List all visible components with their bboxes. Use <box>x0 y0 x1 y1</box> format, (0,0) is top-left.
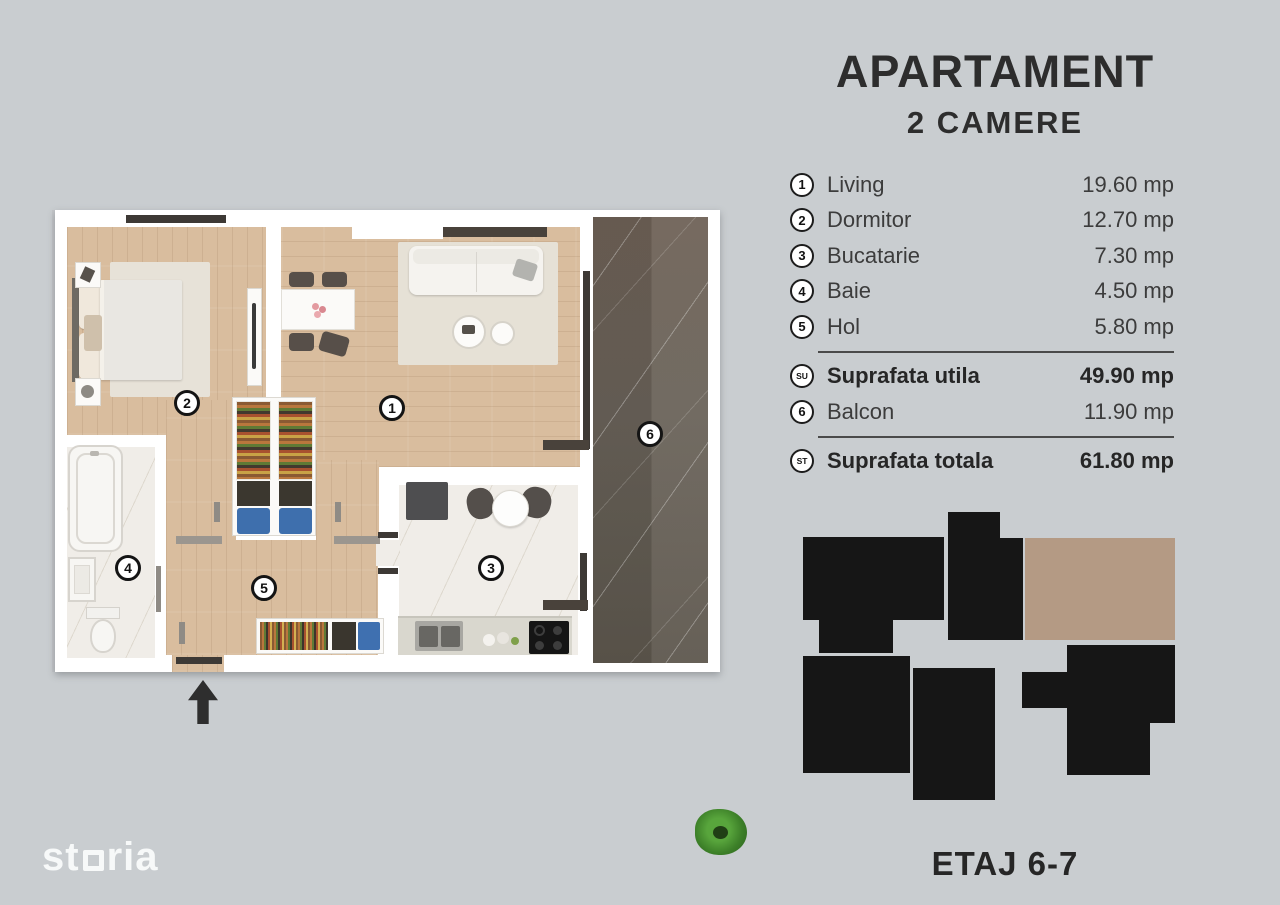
room-number: 2 <box>183 395 191 411</box>
logo-square-o-icon <box>83 850 104 871</box>
legend-label: Living <box>827 172 1082 198</box>
nightstand-dish <box>81 385 94 398</box>
wardrobe-basket-left <box>237 481 270 506</box>
floor-label: ETAJ 6-7 <box>790 845 1220 883</box>
dining-table <box>281 289 355 330</box>
room-badge-dormitor: 2 <box>174 390 200 416</box>
tv-screen <box>252 303 256 369</box>
bathtub-faucet <box>90 451 99 456</box>
legend-badge: 2 <box>790 208 814 232</box>
legend-label: Hol <box>827 314 1095 340</box>
title-block: APARTAMENT 2 CAMERE <box>790 46 1200 141</box>
building-block-5c <box>1067 723 1150 775</box>
unit-highlight <box>1025 538 1175 640</box>
legend-value: 49.90 mp <box>1080 363 1174 389</box>
building-block-5b <box>1022 672 1067 708</box>
legend-label: Suprafata utila <box>827 363 1080 389</box>
kitchen-door-sill-bottom <box>378 568 398 574</box>
room-number: 3 <box>487 560 495 576</box>
room-badge-bucatarie: 3 <box>478 555 504 581</box>
door-post-2 <box>335 502 341 522</box>
legend-row-balcon: 6 Balcon 11.90 mp <box>790 394 1174 430</box>
logo-text-right: ria <box>107 835 159 880</box>
legend-badge: 1 <box>790 173 814 197</box>
legend-label: Bucatarie <box>827 243 1095 269</box>
logo-text-left: st <box>42 835 80 880</box>
door-post-3 <box>179 622 185 644</box>
building-block-3 <box>803 656 910 773</box>
building-block-2b <box>1000 538 1023 640</box>
legend-badge: 5 <box>790 315 814 339</box>
legend-separator <box>818 351 1174 353</box>
dining-chair-2 <box>322 272 347 287</box>
legend-label: Suprafata totala <box>827 448 1080 474</box>
floor-plan: 1 2 3 4 5 6 <box>55 210 720 672</box>
legend-row-suprafata-totala: ST Suprafata totala 61.80 mp <box>790 444 1174 480</box>
page-title: APARTAMENT <box>790 46 1200 98</box>
dining-chair-3 <box>289 333 314 351</box>
corridor-left-floor <box>166 400 236 545</box>
room-number: 6 <box>646 426 654 442</box>
bathroom-door <box>156 566 161 612</box>
plant-pot <box>713 826 728 839</box>
kitchen-lower-lintel <box>543 600 588 610</box>
legend-badge: 3 <box>790 244 814 268</box>
legend-row-suprafata-utila: SU Suprafata utila 49.90 mp <box>790 359 1174 395</box>
sink-basin-1 <box>419 626 438 647</box>
legend-label: Dormitor <box>827 207 1082 233</box>
entrance-arrow-icon <box>188 680 218 724</box>
area-legend: 1 Living 19.60 mp 2 Dormitor 12.70 mp 3 … <box>790 167 1174 479</box>
balcony-sliding-door <box>583 271 590 449</box>
toilet-bowl <box>90 619 116 653</box>
building-block-2 <box>948 512 1000 640</box>
entrance-threshold <box>176 657 222 664</box>
door-post-1 <box>214 502 220 522</box>
legend-separator <box>818 436 1174 438</box>
building-block-1b <box>819 617 893 653</box>
room-number: 5 <box>260 580 268 596</box>
room-number: 1 <box>388 400 396 416</box>
building-block-4 <box>913 668 995 800</box>
wardrobe-shelves-right <box>279 402 312 479</box>
legend-row-baie: 4 Baie 4.50 mp <box>790 274 1174 310</box>
coffee-table-small <box>490 321 515 346</box>
hall-door-sill-left <box>176 536 222 544</box>
room-badge-hol: 5 <box>251 575 277 601</box>
legend-value: 7.30 mp <box>1095 243 1175 269</box>
sideboard-books <box>260 622 328 650</box>
kitchen-table <box>492 490 529 527</box>
bathtub-inner <box>76 453 115 544</box>
wardrobe-shelves-left <box>237 402 270 479</box>
floor-position-diagram <box>795 505 1185 810</box>
living-wall-notch <box>352 227 443 239</box>
table-flowers <box>312 303 319 310</box>
room-badge-balcon: 6 <box>637 421 663 447</box>
legend-badge: ST <box>790 449 814 473</box>
dining-chair-1 <box>289 272 314 287</box>
storia-logo: st ria <box>42 835 159 880</box>
sideboard-bin <box>358 622 380 650</box>
kitchen-door-sill-top <box>378 532 398 538</box>
wardrobe-bin-left <box>237 508 270 534</box>
legend-value: 19.60 mp <box>1082 172 1174 198</box>
bed-runner-cushion <box>84 315 102 351</box>
building-block-5 <box>1067 645 1175 723</box>
bedroom-window <box>126 215 226 223</box>
legend-value: 5.80 mp <box>1095 314 1175 340</box>
living-window-lintel <box>443 227 547 237</box>
sofa-seam <box>476 252 477 292</box>
legend-row-living: 1 Living 19.60 mp <box>790 167 1174 203</box>
kitchen-corner-lintel <box>543 440 589 450</box>
legend-row-bucatarie: 3 Bucatarie 7.30 mp <box>790 238 1174 274</box>
sink-basin-2 <box>441 626 460 647</box>
bed-blanket <box>100 280 182 380</box>
bathroom-sink-basin <box>74 565 90 594</box>
kitchen-dishes <box>483 634 495 646</box>
legend-value: 11.90 mp <box>1084 399 1174 425</box>
sideboard-basket <box>332 622 356 650</box>
legend-label: Baie <box>827 278 1095 304</box>
room-badge-living: 1 <box>379 395 405 421</box>
fridge <box>406 482 448 520</box>
legend-row-dormitor: 2 Dormitor 12.70 mp <box>790 203 1174 239</box>
room-badge-baie: 4 <box>115 555 141 581</box>
cooktop-burners <box>534 625 545 636</box>
wardrobe-bin-right <box>279 508 312 534</box>
legend-value: 61.80 mp <box>1080 448 1174 474</box>
coffee-table-tray <box>462 325 475 334</box>
corridor-right-floor <box>316 460 379 548</box>
toilet-tank <box>86 607 120 619</box>
bed-headboard <box>72 278 79 382</box>
legend-value: 4.50 mp <box>1095 278 1175 304</box>
legend-badge: 6 <box>790 400 814 424</box>
legend-row-hol: 5 Hol 5.80 mp <box>790 309 1174 345</box>
page-subtitle: 2 CAMERE <box>790 105 1200 141</box>
wardrobe-basket-right <box>279 481 312 506</box>
legend-badge: SU <box>790 364 814 388</box>
legend-badge: 4 <box>790 279 814 303</box>
hall-door-sill-right <box>334 536 380 544</box>
room-number: 4 <box>124 560 132 576</box>
building-block-1 <box>803 537 944 620</box>
legend-value: 12.70 mp <box>1082 207 1174 233</box>
legend-label: Balcon <box>827 399 1084 425</box>
